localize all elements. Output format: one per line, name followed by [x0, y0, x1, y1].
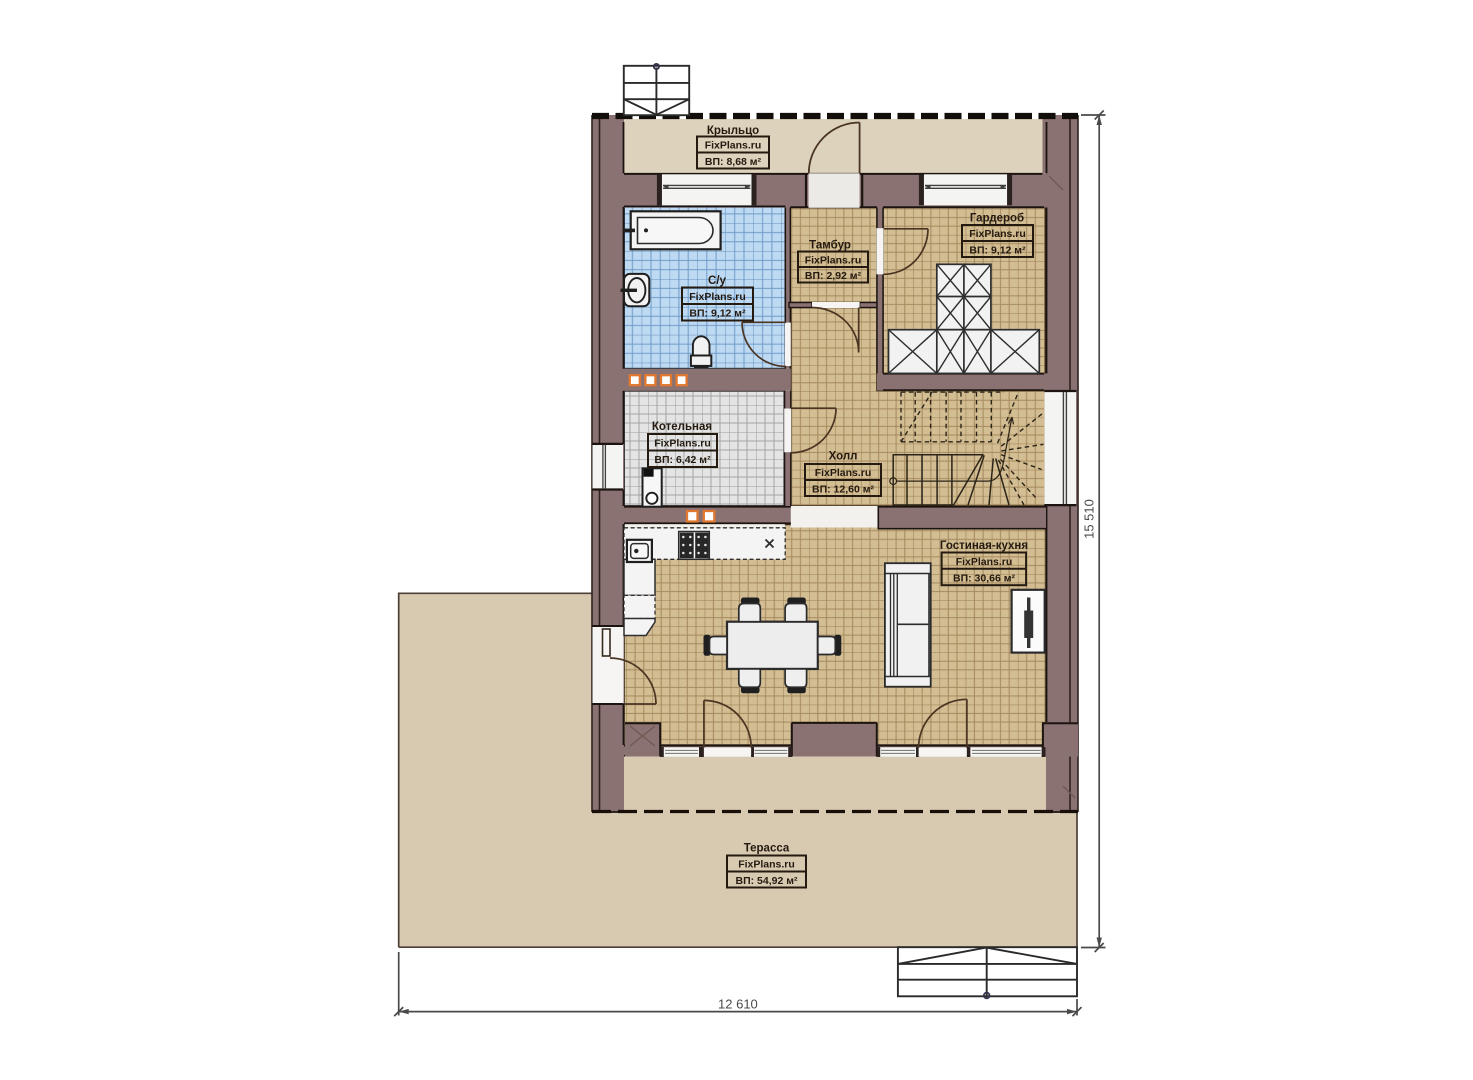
svg-text:ВП: 54,92 м²: ВП: 54,92 м²	[735, 875, 798, 887]
svg-text:Гостиная-кухня: Гостиная-кухня	[940, 540, 1028, 552]
svg-text:FixPlans.ru: FixPlans.ru	[956, 556, 1013, 568]
svg-text:FixPlans.ru: FixPlans.ru	[654, 438, 711, 450]
svg-text:FixPlans.ru: FixPlans.ru	[705, 140, 762, 152]
svg-text:ВП: 8,68 м²: ВП: 8,68 м²	[705, 156, 762, 168]
svg-text:FixPlans.ru: FixPlans.ru	[815, 467, 872, 479]
svg-text:FixPlans.ru: FixPlans.ru	[805, 255, 862, 267]
svg-text:15 510: 15 510	[1082, 499, 1097, 539]
svg-text:Крыльцо: Крыльцо	[707, 125, 759, 137]
svg-text:FixPlans.ru: FixPlans.ru	[738, 859, 795, 871]
svg-text:Котельная: Котельная	[652, 421, 712, 433]
svg-text:FixPlans.ru: FixPlans.ru	[689, 291, 746, 303]
svg-text:ВП: 9,12 м²: ВП: 9,12 м²	[969, 245, 1026, 257]
svg-text:ВП: 6,42 м²: ВП: 6,42 м²	[654, 454, 711, 466]
svg-text:ВП: 9,12 м²: ВП: 9,12 м²	[689, 308, 746, 320]
svg-text:ВП: 2,92 м²: ВП: 2,92 м²	[805, 270, 862, 282]
svg-text:ВП: 12,60 м²: ВП: 12,60 м²	[812, 484, 875, 496]
svg-text:Холл: Холл	[829, 451, 858, 463]
svg-text:FixPlans.ru: FixPlans.ru	[969, 228, 1026, 240]
svg-text:Гардероб: Гардероб	[970, 213, 1024, 225]
svg-text:12 610: 12 610	[718, 997, 758, 1012]
svg-text:Тамбур: Тамбур	[809, 240, 851, 252]
svg-text:С/у: С/у	[708, 275, 727, 287]
svg-text:Терасса: Терасса	[744, 843, 790, 855]
svg-text:ВП: 30,66 м²: ВП: 30,66 м²	[953, 573, 1016, 585]
